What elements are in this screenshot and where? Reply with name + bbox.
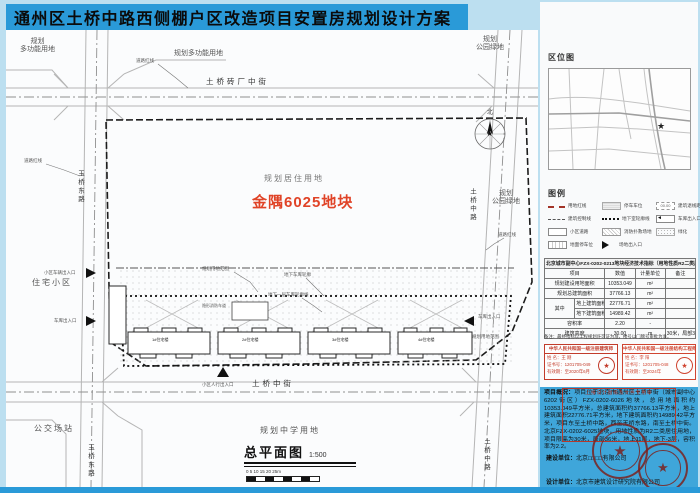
engineer-seal-icon: ★ xyxy=(676,357,693,374)
site-marker-star-icon: ★ xyxy=(657,121,665,132)
legend-item-fire-field: 消防扑救场地 xyxy=(602,228,652,235)
street-label-right-upper: 土桥中路 xyxy=(468,188,475,222)
garage-outline-label: 地下车库轮廓 xyxy=(284,272,311,277)
site-extent-label: 规划用地范围 xyxy=(202,266,229,271)
control-line-symbol xyxy=(548,219,565,220)
economic-index-table: 北京城市副中心FZX-0202-0213地块经济技术指标（用地性质R2二类居住用… xyxy=(544,258,696,339)
title-bar: 通州区土桥中路西侧棚户区改造项目安置房规划设计方案 xyxy=(6,4,468,30)
col-note: 备注 xyxy=(665,269,695,279)
street-label-top: 土桥砖厂中街 xyxy=(206,78,269,87)
setback-symbol: 00.00 xyxy=(656,202,675,210)
legend-column-3: 00.00 建筑退线距离 ◄ 车库出入口 绿化 xyxy=(656,202,700,235)
garage-entrance-label-right: 车库出入口 xyxy=(478,314,501,319)
project-overview-section: 项目概况：项目位于北京市通州区土桥中街（城市副中心6202街区）FZX-0202… xyxy=(540,387,698,489)
group-cell: 其中 xyxy=(545,299,575,319)
road-symbol xyxy=(548,228,567,236)
location-map: ★ xyxy=(548,68,691,170)
redline-symbol xyxy=(548,206,565,208)
area-label-bottom-left: 公交场站 xyxy=(34,424,74,433)
road-edges xyxy=(6,30,538,487)
col-unit: 计量单位 xyxy=(635,269,665,279)
legend-heading: 图例 xyxy=(548,188,566,199)
fire-field-symbol xyxy=(602,228,621,236)
building-label-3: 3#住宅楼 xyxy=(332,338,348,343)
legend-item-basement-outline: 地下室轮廓线 xyxy=(602,215,652,222)
parking-space-symbol xyxy=(602,202,621,210)
engineer-stamp: 中华人民共和国一级注册结构工程师 姓 名：李 阳 证书号：1201705-048… xyxy=(622,344,696,380)
legend-item-road: 小区道路 xyxy=(548,228,593,235)
surface-parking-symbol xyxy=(548,241,567,249)
caption-underline xyxy=(244,462,356,467)
building-label-1: 1#住宅楼 xyxy=(152,338,168,343)
north-label: 北 xyxy=(487,110,493,117)
scanned-plan-page: { "title": "通州区土桥中路西侧棚户区改造项目安置房规划设计方案", … xyxy=(0,0,700,493)
location-map-heading: 区位图 xyxy=(548,52,575,63)
ped-entrance-label: 小区人行出入口 xyxy=(202,382,234,387)
road-redline-label-top: 道路红线 xyxy=(136,58,154,63)
street-label-bottom: 土桥中街 xyxy=(252,380,294,389)
legend-column-1: 用地红线 建筑控制线 小区道路 地面停车位 xyxy=(548,202,593,248)
area-label-top-left: 规划 多功能用地 xyxy=(20,38,55,54)
table-row: 容积率 2.20 - xyxy=(545,319,696,329)
site-plan-sheet: 规划 多功能用地 规划多功能用地 规划 公园绿地 规划 公园绿地 住宅小区 公交… xyxy=(6,30,538,487)
scale-ticks: 0 5 10 15 20 25m xyxy=(246,469,281,474)
building-label-4: 4#住宅楼 xyxy=(418,338,434,343)
bottom-blue-strip xyxy=(0,487,700,493)
sidebar: 区位图 ★ 图例 用地红线 建筑控制线 xyxy=(540,2,698,487)
location-map-roads xyxy=(549,69,690,169)
building-label-2: 2#住宅楼 xyxy=(242,338,258,343)
garage-b1-outline-label: 地下一层车库轮廓线 xyxy=(268,292,309,297)
site-plan-drawing xyxy=(6,30,538,487)
area-label-bottom: 规划中学用地 xyxy=(260,426,320,435)
caption-scale: 1:500 xyxy=(309,452,327,459)
legend-item-site-entrance: 场地出入口 xyxy=(602,241,652,248)
greenery-symbol xyxy=(656,228,675,236)
legend-item-control-line: 建筑控制线 xyxy=(548,215,593,222)
table-row: 规划总建筑面积 37766.13 m² xyxy=(545,289,696,299)
legend-item-surface-parking: 地面停车位 xyxy=(548,241,593,248)
site-use-label: 规划居住用地 xyxy=(264,174,324,183)
caption: 总平面图1:500 xyxy=(244,444,327,462)
legend-item-garage-entrance: ◄ 车库出入口 xyxy=(656,215,700,222)
area-label-left: 住宅小区 xyxy=(32,278,72,287)
designer-company-seal: ★ xyxy=(638,443,688,493)
legend-item-redline: 用地红线 xyxy=(548,202,593,209)
fire-lane-label: 隐形消防车道 xyxy=(202,304,226,309)
road-redline-label-right: 道路红线 xyxy=(498,232,516,237)
road-redline-label-left: 道路红线 xyxy=(24,158,42,163)
caption-title: 总平面图 xyxy=(244,445,304,460)
site-extent-label-2: 规划用地范围 xyxy=(472,334,499,339)
legend-item-greenery: 绿化 xyxy=(656,228,700,235)
table-row: 规划建设用地面积 10353.049 m² xyxy=(545,279,696,289)
col-item: 项目 xyxy=(545,269,605,279)
scale-bar xyxy=(246,476,320,482)
vehicle-entrance-label: 小区车辆出入口 xyxy=(44,270,76,275)
street-label-left-lower: 玉桥东路 xyxy=(86,444,93,478)
col-value: 数值 xyxy=(605,269,635,279)
basement-outline-symbol xyxy=(602,218,619,220)
legend-item-parking-space: 停车车位 xyxy=(602,202,652,209)
legend-column-2: 停车车位 地下室轮廓线 消防扑救场地 场地出入口 xyxy=(602,202,652,248)
architect-seal-icon: ★ xyxy=(598,357,615,374)
street-label-left-upper: 玉桥东路 xyxy=(76,170,83,204)
compass-star-icon: ★ xyxy=(486,129,493,138)
site-entrance-symbol xyxy=(602,241,616,249)
garage-entrance-symbol: ◄ xyxy=(656,215,675,223)
site-name-label: 金隅6025地块 xyxy=(252,194,353,211)
page-title: 通州区土桥中路西侧棚户区改造项目安置房规划设计方案 xyxy=(6,5,452,29)
road-centerlines xyxy=(6,30,538,487)
legend-item-setback: 00.00 建筑退线距离 xyxy=(656,202,700,209)
street-label-right-lower: 土桥中路 xyxy=(482,438,489,472)
table-row: 其中 地上建筑面积 22776.71 m² xyxy=(545,299,696,309)
architect-stamp: 中华人民共和国一级注册建筑师 姓 名：王 刚 证书号：1201705-049 有… xyxy=(544,344,618,380)
table-title: 北京城市副中心FZX-0202-0213地块经济技术指标（用地性质R2二类居住用… xyxy=(545,259,696,269)
area-label-top-center: 规划多功能用地 xyxy=(174,50,223,58)
table-footnote: 备注：最终指标以工程规划许可证为准，楼号以门牌号审批为准。 xyxy=(544,334,671,340)
area-label-top-right: 规划 公园绿地 xyxy=(476,36,504,52)
area-label-right: 规划 公园绿地 xyxy=(492,190,520,206)
garage-entrance-label-left: 车库出入口 xyxy=(54,318,77,323)
